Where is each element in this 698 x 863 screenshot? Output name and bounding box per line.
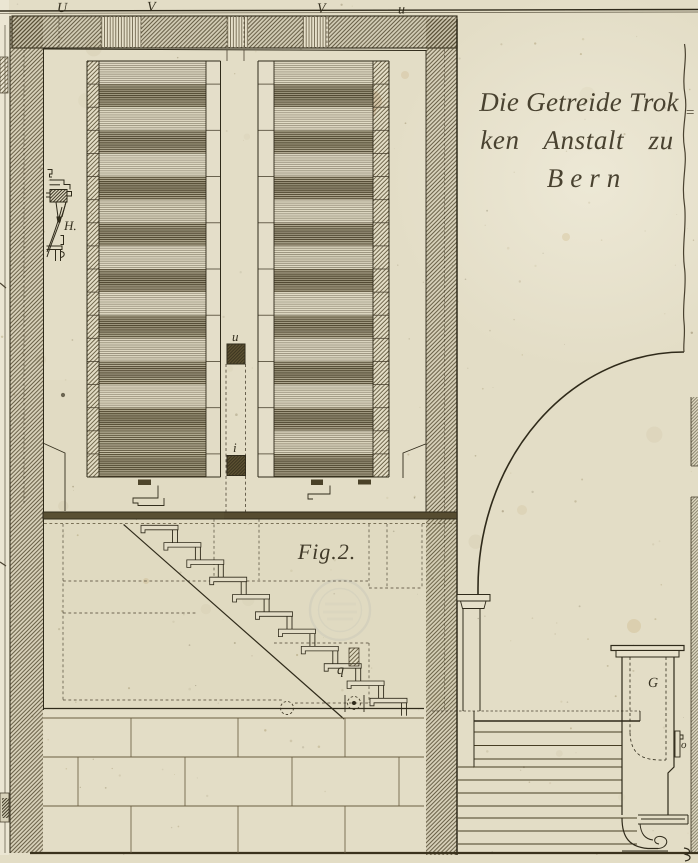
svg-text:u: u xyxy=(232,329,239,344)
svg-text:ken Anstalt zu: ken Anstalt zu xyxy=(480,125,673,155)
svg-text:V: V xyxy=(317,2,327,17)
svg-text:V: V xyxy=(147,0,157,15)
svg-text:=: = xyxy=(685,105,695,121)
svg-text:U: U xyxy=(57,1,68,16)
svg-text:G: G xyxy=(648,676,658,691)
svg-text:o: o xyxy=(681,739,687,751)
svg-text:i: i xyxy=(233,440,237,455)
svg-text:Fig.2.: Fig.2. xyxy=(297,539,357,564)
svg-text:Bern: Bern xyxy=(547,163,628,193)
svg-text:Die Getreide Trok: Die Getreide Trok xyxy=(478,87,679,117)
svg-text:u: u xyxy=(398,3,405,18)
svg-text:q: q xyxy=(337,663,344,678)
svg-text:H.: H. xyxy=(63,218,77,233)
